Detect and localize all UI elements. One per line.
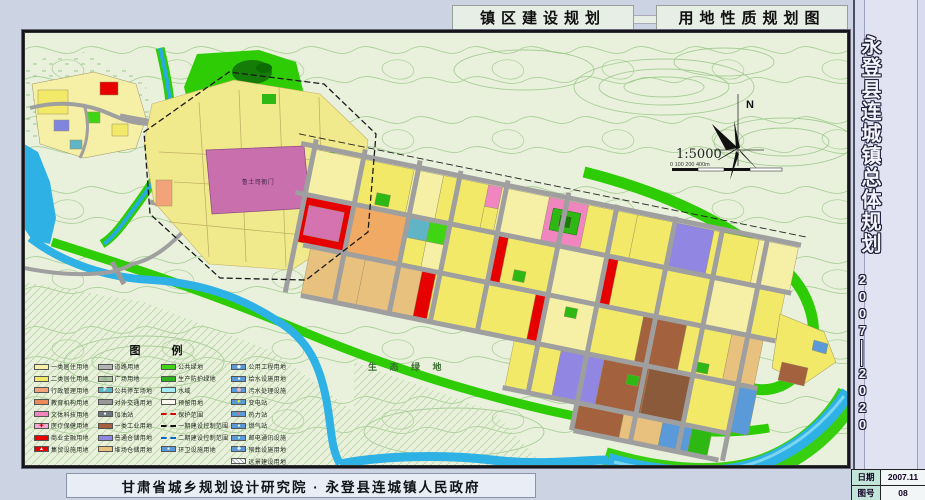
legend-item-label: 广场用地 [115, 374, 140, 383]
planning-period: 2007——2020 [855, 268, 925, 438]
legend-swatch [161, 437, 176, 439]
legend-item-label: 邮电通讯设施 [248, 433, 286, 442]
legend-swatch [98, 364, 113, 370]
legend-item-label: 公共绿地 [178, 362, 203, 371]
legend-swatch [161, 399, 176, 405]
legend-item: ●燃气站 [231, 420, 292, 432]
eco-green-label: 生 态 绿 地 [368, 361, 447, 372]
legend-swatch-icon: ∷ [99, 376, 112, 381]
legend-item: 生产防护绿地 [161, 373, 228, 385]
legend-item: 水域 [161, 385, 228, 397]
legend-item-label: 文体科技用地 [51, 410, 89, 419]
legend-swatch: ● [231, 376, 246, 382]
legend-item: 堆场仓储用地 [98, 444, 159, 456]
legend-item-label: 二期建设控制范围 [178, 433, 228, 442]
legend-swatch-icon: P [99, 387, 112, 392]
legend-swatch [161, 376, 176, 382]
legend-item-label: 堆场仓储用地 [115, 445, 153, 454]
legend-item-label: 行政管理用地 [51, 386, 89, 395]
legend-item-label: 保护范围 [178, 410, 203, 419]
legend-swatch-icon: ● [232, 411, 245, 416]
legend-swatch [34, 387, 49, 393]
legend-item: 一类居住用地 [34, 361, 95, 373]
legend-swatch [231, 458, 246, 464]
legend-column-1: 一类居住用地二类居住用地行政管理用地教育机构用地文体科技用地✚医疗保健用地商业金… [34, 361, 95, 467]
legend-item: 保护范围 [161, 408, 228, 420]
legend-item: 远景建设用地 [231, 455, 292, 467]
legend-swatch-icon: ✚ [232, 446, 245, 451]
legend-item: 二类居住用地 [34, 373, 95, 385]
legend-item-label: 给水设施用地 [248, 374, 286, 383]
legend-swatch-icon: ● [232, 376, 245, 381]
legend-item: 对外交通用地 [98, 396, 159, 408]
legend-swatch-icon: ◆ [232, 364, 245, 369]
legend-column-3: 公共绿地生产防护绿地水域预留用地保护范围一期建设控制范围二期建设控制范围●环卫设… [161, 361, 228, 467]
legend-swatch-icon: ● [162, 446, 175, 451]
period-dash: —— [855, 340, 925, 366]
legend-swatch [34, 399, 49, 405]
legend-swatch: ● [231, 411, 246, 417]
sheet-row: 图号 08 [852, 486, 925, 500]
legend-swatch: ◆ [231, 364, 246, 370]
period-start: 2007 [855, 272, 925, 340]
legend-item: 预留用地 [161, 396, 228, 408]
legend-item-label: 污水处理设施 [248, 386, 286, 395]
legend-item: ◉污水处理设施 [231, 385, 292, 397]
title-sidebar: 永登县连城镇总体规划 2007——2020 [853, 0, 925, 500]
west-village-parcels [32, 72, 146, 158]
legend-item: ∷广场用地 [98, 373, 159, 385]
legend-item: 行政管理用地 [34, 385, 95, 397]
legend-item: 二期建设控制范围 [161, 432, 228, 444]
legend-column-4: ◆公用工程用地●给水设施用地◉污水处理设施✦变电站●热力站●燃气站●邮电通讯设施… [231, 361, 292, 467]
date-row: 日期 2007.11 [852, 470, 925, 486]
tab-construction-plan[interactable]: 镇区建设规划 [452, 5, 634, 30]
legend-item-label: 教育机构用地 [51, 398, 89, 407]
credit-bar: 甘肃省城乡规划设计研究院 · 永登县连城镇人民政府 [66, 473, 536, 498]
legend-item: ◆公用工程用地 [231, 361, 292, 373]
legend-item-label: 环卫设施用地 [178, 445, 216, 454]
legend-swatch-icon: ● [99, 411, 112, 416]
legend-item-label: 对外交通用地 [115, 398, 153, 407]
legend-item-label: 一类居住用地 [51, 362, 89, 371]
legend-item: 一期建设控制范围 [161, 420, 228, 432]
legend-swatch [34, 364, 49, 370]
legend-item-label: 殡葬设施用地 [248, 445, 286, 454]
legend-item: ✦变电站 [231, 396, 292, 408]
legend-item: 公共绿地 [161, 361, 228, 373]
drawing-title-vertical: 永登县连城镇总体规划 [855, 30, 925, 260]
scale-ticks: 0 100 200 400m [670, 162, 710, 168]
legend-item-label: 集贸设施用地 [51, 445, 89, 454]
legend-swatch [98, 399, 113, 405]
legend-swatch: ✚ [34, 423, 49, 429]
legend-swatch-icon: ● [232, 423, 245, 428]
legend-swatch [34, 435, 49, 441]
legend-swatch-icon: ▲ [35, 446, 48, 451]
scale-text: 1:5000 [676, 147, 722, 162]
legend-swatch: P [98, 387, 113, 393]
legend-item: P公共停车场地 [98, 385, 159, 397]
legend-swatch: ✦ [231, 399, 246, 405]
legend-item-label: 公用工程用地 [248, 362, 286, 371]
legend-swatch [161, 387, 176, 393]
legend-item-label: 道路用地 [115, 362, 140, 371]
legend-item: ✚殡葬设施用地 [231, 444, 292, 456]
legend-item: 普通仓储用地 [98, 432, 159, 444]
legend-swatch: ● [98, 411, 113, 417]
map-panel: 鲁土司衙门 [22, 30, 850, 468]
legend-item-label: 生产防护绿地 [178, 374, 216, 383]
legend-swatch [98, 435, 113, 441]
legend-columns: 一类居住用地二类居住用地行政管理用地教育机构用地文体科技用地✚医疗保健用地商业金… [34, 361, 292, 467]
legend-item: 道路用地 [98, 361, 159, 373]
legend-swatch [161, 364, 176, 370]
legend-item: ●加油站 [98, 408, 159, 420]
legend-swatch: ◉ [231, 387, 246, 393]
legend-item-label: 远景建设用地 [248, 457, 286, 466]
legend-swatch [98, 446, 113, 452]
legend-swatch: ● [231, 435, 246, 441]
legend-swatch-icon: ✚ [35, 423, 48, 428]
period-end: 2020 [855, 366, 925, 434]
legend-item-label: 燃气站 [248, 421, 267, 430]
legend-swatch [98, 423, 113, 429]
old-town-label: 鲁土司衙门 [242, 178, 275, 186]
legend-item-label: 加油站 [115, 410, 134, 419]
legend-item: 文体科技用地 [34, 408, 95, 420]
legend-column-2: 道路用地∷广场用地P公共停车场地对外交通用地●加油站一类工业用地普通仓储用地堆场… [98, 361, 159, 467]
legend-item-label: 医疗保健用地 [51, 421, 89, 430]
legend-title: 图 例 [34, 342, 292, 358]
sheet-number-value: 08 [881, 486, 925, 500]
legend-item: ●给水设施用地 [231, 373, 292, 385]
legend-item-label: 变电站 [248, 398, 267, 407]
legend: 图 例 一类居住用地二类居住用地行政管理用地教育机构用地文体科技用地✚医疗保健用… [34, 342, 292, 467]
legend-item: 教育机构用地 [34, 396, 95, 408]
north-label: N [746, 99, 754, 111]
legend-item-label: 二类居住用地 [51, 374, 89, 383]
legend-item-label: 水域 [178, 386, 191, 395]
date-label: 日期 [852, 470, 881, 485]
legend-item: 一类工业用地 [98, 420, 159, 432]
date-value: 2007.11 [881, 470, 925, 485]
legend-swatch-icon: ◉ [232, 387, 245, 392]
legend-item-label: 一类工业用地 [115, 421, 153, 430]
legend-swatch-icon: ● [232, 435, 245, 440]
legend-swatch: ∷ [98, 376, 113, 382]
legend-swatch: ● [231, 423, 246, 429]
sheet-number-label: 图号 [852, 486, 881, 500]
legend-item-label: 普通仓储用地 [115, 433, 153, 442]
legend-item: ●热力站 [231, 408, 292, 420]
legend-swatch [34, 411, 49, 417]
legend-swatch [161, 425, 176, 427]
title-block-table: 日期 2007.11 图号 08 [851, 469, 925, 500]
legend-item: ▲集贸设施用地 [34, 444, 95, 456]
legend-swatch: ▲ [34, 446, 49, 452]
planning-sheet: 镇区建设规划 用地性质规划图 [0, 0, 925, 500]
legend-swatch-icon: ✦ [232, 399, 245, 404]
tab-landuse-plan[interactable]: 用地性质规划图 [656, 5, 848, 30]
legend-swatch: ● [161, 446, 176, 452]
legend-item-label: 商业金融用地 [51, 433, 89, 442]
legend-item-label: 一期建设控制范围 [178, 421, 228, 430]
legend-item-label: 预留用地 [178, 398, 203, 407]
legend-swatch [161, 413, 176, 415]
legend-swatch [34, 376, 49, 382]
legend-item-label: 热力站 [248, 410, 267, 419]
legend-item: 商业金融用地 [34, 432, 95, 444]
legend-item-label: 公共停车场地 [115, 386, 153, 395]
legend-swatch: ✚ [231, 446, 246, 452]
legend-item: ●邮电通讯设施 [231, 432, 292, 444]
legend-item: ●环卫设施用地 [161, 444, 228, 456]
legend-item: ✚医疗保健用地 [34, 420, 95, 432]
